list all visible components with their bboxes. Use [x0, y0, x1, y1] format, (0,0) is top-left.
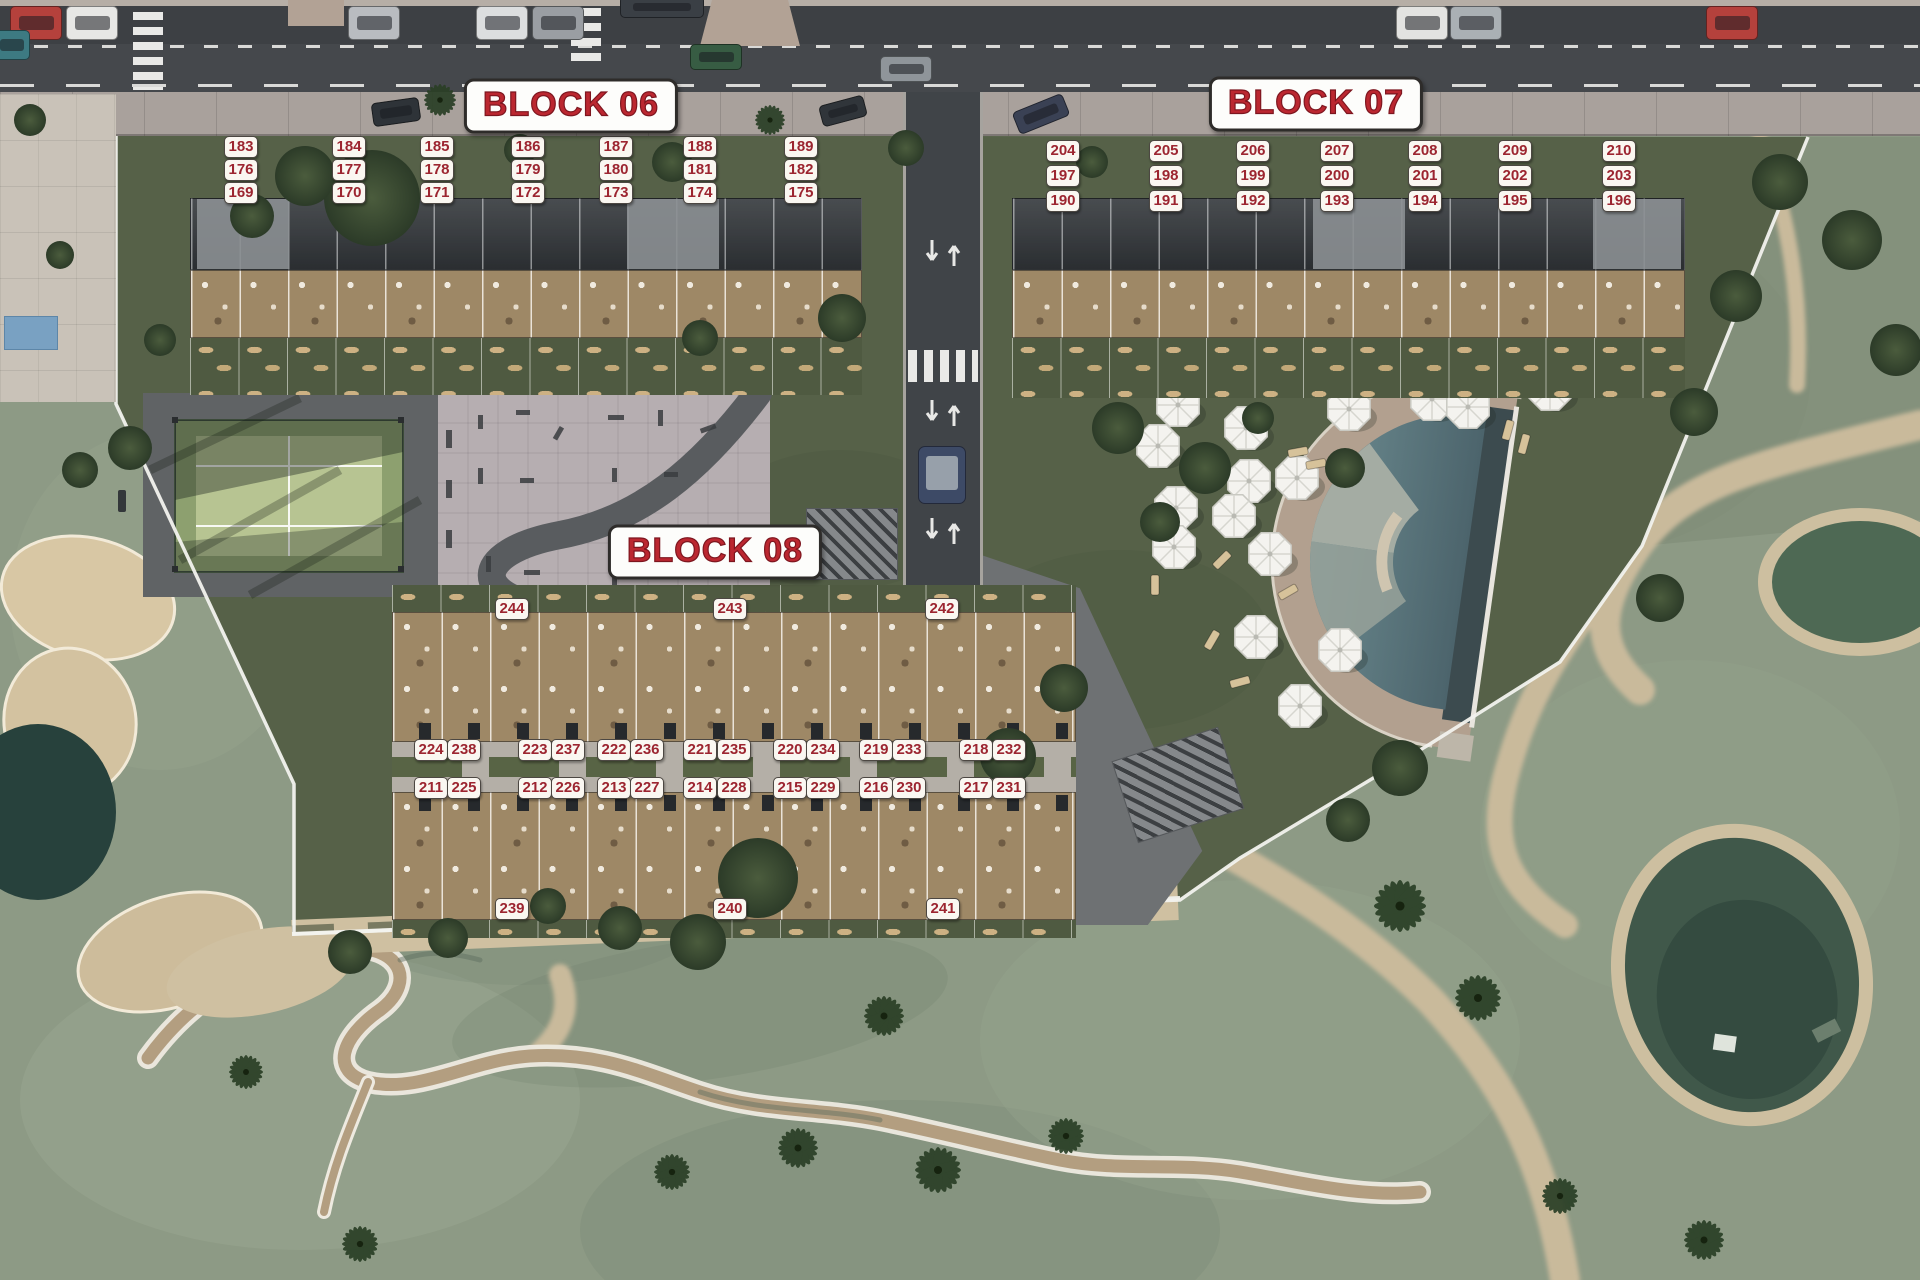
unit-label-242[interactable]: 242 [925, 598, 959, 620]
car-icon [348, 6, 400, 40]
car-icon [0, 30, 30, 60]
car-icon [1396, 6, 1448, 40]
unit-label-217[interactable]: 217 [959, 777, 993, 799]
unit-label-240[interactable]: 240 [713, 898, 747, 920]
car-icon [532, 6, 584, 40]
entrance-road [903, 92, 983, 588]
unit-label-179[interactable]: 179 [511, 159, 545, 181]
unit-label-209[interactable]: 209 [1498, 140, 1532, 162]
car-icon [476, 6, 528, 40]
unit-label-206[interactable]: 206 [1236, 140, 1270, 162]
unit-label-210[interactable]: 210 [1602, 140, 1636, 162]
unit-label-243[interactable]: 243 [713, 598, 747, 620]
unit-label-234[interactable]: 234 [806, 739, 840, 761]
unit-label-197[interactable]: 197 [1046, 165, 1080, 187]
unit-label-172[interactable]: 172 [511, 182, 545, 204]
unit-label-223[interactable]: 223 [518, 739, 552, 761]
unit-label-235[interactable]: 235 [717, 739, 751, 761]
unit-label-236[interactable]: 236 [630, 739, 664, 761]
block-title-08: BLOCK 08 [608, 525, 822, 580]
unit-label-241[interactable]: 241 [926, 898, 960, 920]
unit-label-221[interactable]: 221 [683, 739, 717, 761]
bus-icon [918, 446, 966, 504]
unit-label-184[interactable]: 184 [332, 136, 366, 158]
unit-label-238[interactable]: 238 [447, 739, 481, 761]
unit-label-230[interactable]: 230 [892, 777, 926, 799]
unit-label-218[interactable]: 218 [959, 739, 993, 761]
crosswalk [133, 12, 163, 90]
unit-label-201[interactable]: 201 [1408, 165, 1442, 187]
unit-label-186[interactable]: 186 [511, 136, 545, 158]
unit-label-233[interactable]: 233 [892, 739, 926, 761]
car-icon [1706, 6, 1758, 40]
median-island [700, 0, 800, 46]
block-title-07: BLOCK 07 [1209, 77, 1423, 132]
unit-label-207[interactable]: 207 [1320, 140, 1354, 162]
unit-label-231[interactable]: 231 [992, 777, 1026, 799]
unit-label-212[interactable]: 212 [518, 777, 552, 799]
unit-label-176[interactable]: 176 [224, 159, 258, 181]
car-icon [1450, 6, 1502, 40]
neighbour-terrace [0, 94, 116, 402]
unit-label-214[interactable]: 214 [683, 777, 717, 799]
unit-label-171[interactable]: 171 [420, 182, 454, 204]
unit-label-174[interactable]: 174 [683, 182, 717, 204]
unit-label-185[interactable]: 185 [420, 136, 454, 158]
unit-label-191[interactable]: 191 [1149, 190, 1183, 212]
unit-label-204[interactable]: 204 [1046, 140, 1080, 162]
lane-marking [0, 45, 1920, 48]
lane-arrows-icon [922, 398, 966, 428]
unit-label-198[interactable]: 198 [1149, 165, 1183, 187]
unit-label-226[interactable]: 226 [551, 777, 585, 799]
unit-label-211[interactable]: 211 [414, 777, 448, 799]
unit-label-237[interactable]: 237 [551, 739, 585, 761]
unit-label-175[interactable]: 175 [784, 182, 818, 204]
car-icon [66, 6, 118, 40]
car-icon [880, 56, 932, 82]
unit-label-180[interactable]: 180 [599, 159, 633, 181]
unit-label-170[interactable]: 170 [332, 182, 366, 204]
unit-label-190[interactable]: 190 [1046, 190, 1080, 212]
unit-label-229[interactable]: 229 [806, 777, 840, 799]
unit-label-169[interactable]: 169 [224, 182, 258, 204]
unit-label-173[interactable]: 173 [599, 182, 633, 204]
unit-label-196[interactable]: 196 [1602, 190, 1636, 212]
unit-label-177[interactable]: 177 [332, 159, 366, 181]
unit-label-203[interactable]: 203 [1602, 165, 1636, 187]
unit-label-182[interactable]: 182 [784, 159, 818, 181]
unit-label-205[interactable]: 205 [1149, 140, 1183, 162]
unit-label-194[interactable]: 194 [1408, 190, 1442, 212]
unit-label-213[interactable]: 213 [597, 777, 631, 799]
unit-label-225[interactable]: 225 [447, 777, 481, 799]
unit-label-222[interactable]: 222 [597, 739, 631, 761]
unit-label-232[interactable]: 232 [992, 739, 1026, 761]
block-title-06: BLOCK 06 [464, 79, 678, 134]
crosswalk [908, 350, 978, 382]
unit-label-202[interactable]: 202 [1498, 165, 1532, 187]
unit-label-188[interactable]: 188 [683, 136, 717, 158]
small-pool [4, 316, 58, 350]
unit-label-199[interactable]: 199 [1236, 165, 1270, 187]
unit-label-227[interactable]: 227 [630, 777, 664, 799]
unit-label-239[interactable]: 239 [495, 898, 529, 920]
padel-court [118, 393, 438, 597]
lane-arrows-icon [922, 516, 966, 546]
unit-label-219[interactable]: 219 [859, 739, 893, 761]
unit-label-189[interactable]: 189 [784, 136, 818, 158]
truck-icon [620, 0, 704, 18]
site-plan: 1831841851861871881891761771781791801811… [0, 0, 1920, 1280]
unit-label-224[interactable]: 224 [414, 739, 448, 761]
lane-arrows-icon [922, 238, 966, 268]
unit-label-215[interactable]: 215 [773, 777, 807, 799]
unit-label-208[interactable]: 208 [1408, 140, 1442, 162]
main-road [0, 0, 1920, 92]
unit-label-216[interactable]: 216 [859, 777, 893, 799]
unit-label-178[interactable]: 178 [420, 159, 454, 181]
car-icon [690, 44, 742, 70]
unit-label-183[interactable]: 183 [224, 136, 258, 158]
unit-label-195[interactable]: 195 [1498, 190, 1532, 212]
unit-label-244[interactable]: 244 [495, 598, 529, 620]
unit-label-187[interactable]: 187 [599, 136, 633, 158]
unit-label-193[interactable]: 193 [1320, 190, 1354, 212]
unit-label-228[interactable]: 228 [717, 777, 751, 799]
unit-label-220[interactable]: 220 [773, 739, 807, 761]
lane-marking [0, 84, 1920, 87]
unit-label-200[interactable]: 200 [1320, 165, 1354, 187]
unit-label-181[interactable]: 181 [683, 159, 717, 181]
driveway-island [288, 0, 344, 26]
unit-label-192[interactable]: 192 [1236, 190, 1270, 212]
